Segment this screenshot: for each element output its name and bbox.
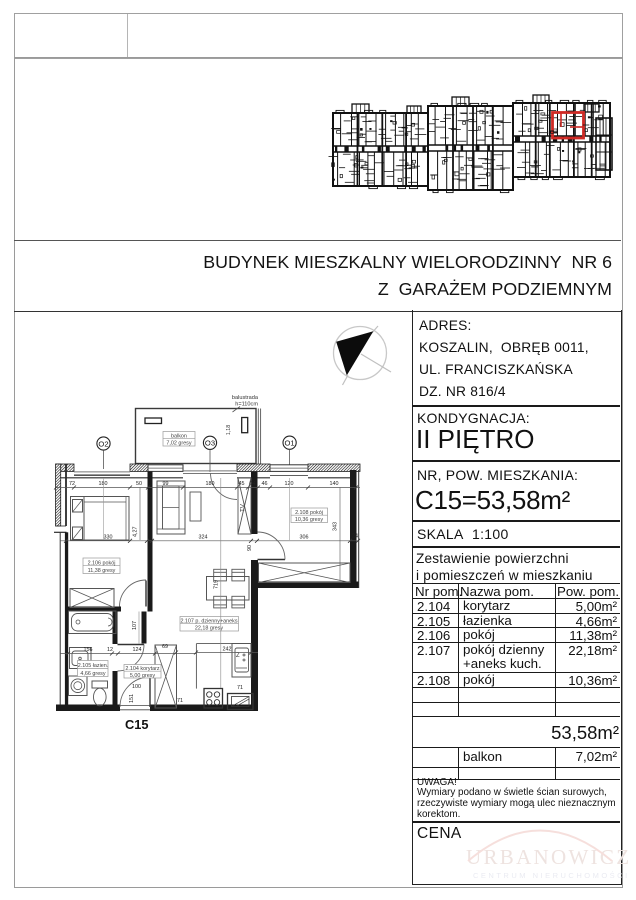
svg-text:04: 04 (250, 481, 256, 487)
svg-text:343: 343 (333, 522, 339, 531)
svg-text:71: 71 (177, 698, 183, 704)
svg-text:22,18 gresy: 22,18 gresy (195, 626, 223, 632)
svg-text:5,00 gresy: 5,00 gresy (130, 673, 155, 679)
svg-text:71: 71 (237, 685, 243, 691)
svg-text:242: 242 (223, 647, 232, 653)
svg-text:2.108 pokój: 2.108 pokój (295, 510, 323, 516)
svg-text:100: 100 (132, 684, 141, 690)
svg-text:2.105 łazien.: 2.105 łazien. (78, 663, 109, 669)
svg-text:324: 324 (199, 535, 208, 541)
svg-text:69: 69 (162, 644, 168, 650)
svg-text:Z: Z (236, 653, 240, 659)
svg-text:10,36 gresy: 10,36 gresy (295, 517, 323, 523)
svg-text:719: 719 (214, 580, 220, 589)
svg-text:12: 12 (107, 647, 113, 653)
svg-text:330: 330 (104, 535, 113, 541)
svg-text:balkon: balkon (171, 433, 187, 439)
svg-text:124: 124 (133, 647, 142, 653)
svg-text:156: 156 (84, 647, 93, 653)
svg-text:4,27: 4,27 (133, 527, 139, 538)
svg-text:306: 306 (300, 535, 309, 541)
svg-text:O3: O3 (205, 439, 215, 448)
svg-text:99: 99 (163, 481, 169, 487)
svg-text:107: 107 (132, 621, 138, 630)
svg-text:2.107 p. dzienny+aneks: 2.107 p. dzienny+aneks (180, 618, 237, 624)
svg-text:2.106 pokój: 2.106 pokój (88, 560, 116, 566)
svg-text:4,66 gresy: 4,66 gresy (80, 671, 105, 677)
svg-text:45: 45 (239, 481, 245, 487)
svg-text:h=110cm: h=110cm (235, 402, 258, 408)
svg-text:90: 90 (247, 545, 253, 551)
svg-text:C15: C15 (125, 717, 148, 732)
svg-text:O2: O2 (98, 439, 108, 448)
svg-text:TV: TV (240, 503, 247, 512)
svg-text:11,38 gresy: 11,38 gresy (88, 568, 116, 574)
svg-text:50: 50 (136, 481, 142, 487)
svg-text:1,18: 1,18 (226, 425, 232, 435)
svg-text:180: 180 (99, 481, 108, 487)
svg-text:2.104 korytarz: 2.104 korytarz (125, 666, 159, 672)
svg-text:151: 151 (129, 694, 135, 703)
svg-text:46: 46 (262, 481, 268, 487)
svg-text:O1: O1 (285, 439, 295, 448)
svg-text:120: 120 (285, 481, 294, 487)
svg-text:24: 24 (352, 534, 358, 540)
svg-text:72: 72 (69, 481, 75, 487)
svg-text:180: 180 (206, 481, 215, 487)
svg-text:140: 140 (330, 481, 339, 487)
svg-text:balustrada: balustrada (232, 395, 259, 401)
svg-text:7,02 gresy: 7,02 gresy (166, 441, 191, 447)
